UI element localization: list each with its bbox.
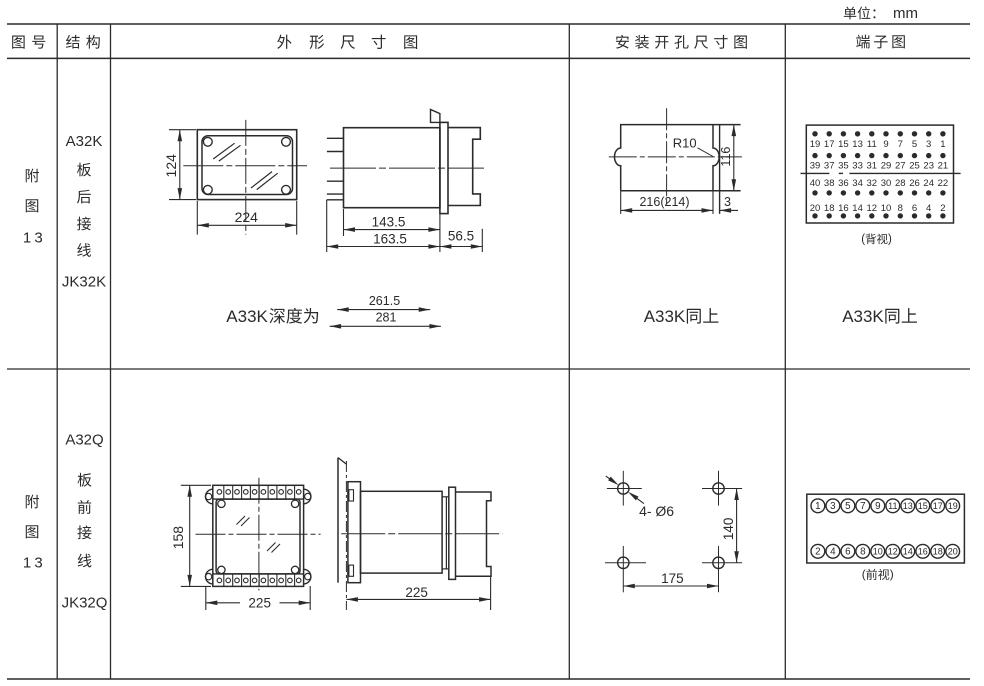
svg-text:(: ( bbox=[861, 233, 865, 245]
svg-text:): ) bbox=[888, 233, 892, 245]
svg-text:16: 16 bbox=[918, 547, 928, 557]
svg-text:15: 15 bbox=[918, 501, 928, 511]
svg-text:2: 2 bbox=[940, 203, 945, 214]
svg-text:24: 24 bbox=[923, 178, 934, 189]
svg-text:281: 281 bbox=[376, 311, 397, 325]
svg-text:36: 36 bbox=[838, 178, 849, 189]
svg-text:13: 13 bbox=[852, 139, 863, 150]
svg-text:18: 18 bbox=[933, 547, 943, 557]
svg-text:13: 13 bbox=[903, 501, 913, 511]
svg-text:25: 25 bbox=[909, 161, 920, 172]
svg-text:56.5: 56.5 bbox=[448, 229, 474, 244]
svg-text:7: 7 bbox=[860, 501, 865, 512]
svg-text:39: 39 bbox=[810, 161, 821, 172]
svg-text:12: 12 bbox=[888, 547, 898, 557]
svg-text:3: 3 bbox=[926, 139, 931, 150]
svg-text:143.5: 143.5 bbox=[372, 215, 406, 230]
svg-text:37: 37 bbox=[824, 161, 835, 172]
svg-text:5: 5 bbox=[845, 501, 851, 512]
svg-text:40: 40 bbox=[810, 178, 821, 189]
svg-text:140: 140 bbox=[721, 518, 736, 541]
svg-text:14: 14 bbox=[903, 547, 913, 557]
svg-text:17: 17 bbox=[933, 501, 943, 511]
svg-text:216(214): 216(214) bbox=[639, 195, 689, 209]
svg-text:38: 38 bbox=[824, 178, 835, 189]
svg-text:): ) bbox=[890, 567, 894, 581]
svg-text:29: 29 bbox=[881, 161, 892, 172]
svg-text:18: 18 bbox=[824, 203, 835, 214]
svg-text:9: 9 bbox=[883, 139, 888, 150]
svg-text:17: 17 bbox=[824, 139, 835, 150]
svg-text:175: 175 bbox=[661, 571, 684, 586]
svg-text:31: 31 bbox=[867, 161, 878, 172]
svg-text:20: 20 bbox=[810, 203, 821, 214]
svg-text:224: 224 bbox=[235, 209, 259, 225]
svg-text:116: 116 bbox=[719, 147, 733, 167]
svg-text:23: 23 bbox=[923, 161, 934, 172]
svg-text:JK32Q: JK32Q bbox=[62, 595, 108, 612]
svg-text:1: 1 bbox=[940, 139, 945, 150]
svg-text:3: 3 bbox=[34, 229, 42, 246]
svg-text:19: 19 bbox=[948, 501, 958, 511]
svg-text:4: 4 bbox=[926, 203, 931, 214]
svg-text:9: 9 bbox=[875, 501, 880, 512]
svg-text:A33K: A33K bbox=[226, 307, 268, 326]
svg-text:3: 3 bbox=[724, 195, 731, 209]
svg-text:A32Q: A32Q bbox=[65, 432, 103, 449]
svg-text:4: 4 bbox=[830, 547, 836, 558]
svg-text:34: 34 bbox=[852, 178, 863, 189]
svg-text:8: 8 bbox=[860, 547, 866, 558]
svg-text:158: 158 bbox=[170, 526, 186, 550]
svg-text:19: 19 bbox=[810, 139, 821, 150]
svg-text:R10: R10 bbox=[673, 136, 697, 151]
svg-text:20: 20 bbox=[948, 547, 958, 557]
svg-text:10: 10 bbox=[873, 547, 883, 557]
svg-text:6: 6 bbox=[912, 203, 917, 214]
svg-text:7: 7 bbox=[898, 139, 903, 150]
svg-text:14: 14 bbox=[852, 203, 863, 214]
svg-text:225: 225 bbox=[248, 595, 271, 610]
svg-text:A33K: A33K bbox=[842, 307, 884, 326]
svg-text:12: 12 bbox=[867, 203, 878, 214]
svg-text:35: 35 bbox=[838, 161, 849, 172]
svg-text:11: 11 bbox=[888, 501, 897, 511]
svg-text:1: 1 bbox=[23, 554, 31, 571]
svg-text:1: 1 bbox=[23, 229, 31, 246]
svg-text:3: 3 bbox=[34, 554, 42, 571]
svg-text:1: 1 bbox=[815, 501, 820, 512]
svg-text:8: 8 bbox=[898, 203, 903, 214]
svg-text:27: 27 bbox=[895, 161, 906, 172]
svg-text:mm: mm bbox=[893, 5, 918, 22]
svg-text:3: 3 bbox=[830, 501, 836, 512]
svg-text:15: 15 bbox=[838, 139, 849, 150]
svg-text:32: 32 bbox=[867, 178, 878, 189]
svg-text:6: 6 bbox=[845, 547, 851, 558]
svg-text:163.5: 163.5 bbox=[373, 232, 407, 247]
svg-text:26: 26 bbox=[909, 178, 920, 189]
svg-text:124: 124 bbox=[163, 154, 179, 178]
svg-text:33: 33 bbox=[852, 161, 863, 172]
svg-text:30: 30 bbox=[881, 178, 892, 189]
svg-text:11: 11 bbox=[867, 139, 877, 150]
svg-text:261.5: 261.5 bbox=[369, 294, 400, 308]
svg-text:(: ( bbox=[862, 567, 866, 581]
svg-text:5: 5 bbox=[912, 139, 917, 150]
svg-text:JK32K: JK32K bbox=[62, 274, 106, 291]
svg-text:28: 28 bbox=[895, 178, 906, 189]
svg-text:21: 21 bbox=[938, 161, 949, 172]
svg-text:A33K: A33K bbox=[644, 307, 686, 326]
svg-text:2: 2 bbox=[815, 547, 820, 558]
svg-text:225: 225 bbox=[405, 585, 428, 600]
svg-text:A32K: A32K bbox=[66, 133, 103, 150]
svg-text:10: 10 bbox=[881, 203, 892, 214]
svg-text:22: 22 bbox=[938, 178, 949, 189]
svg-text:4- Ø6: 4- Ø6 bbox=[639, 503, 674, 519]
svg-text:16: 16 bbox=[838, 203, 849, 214]
